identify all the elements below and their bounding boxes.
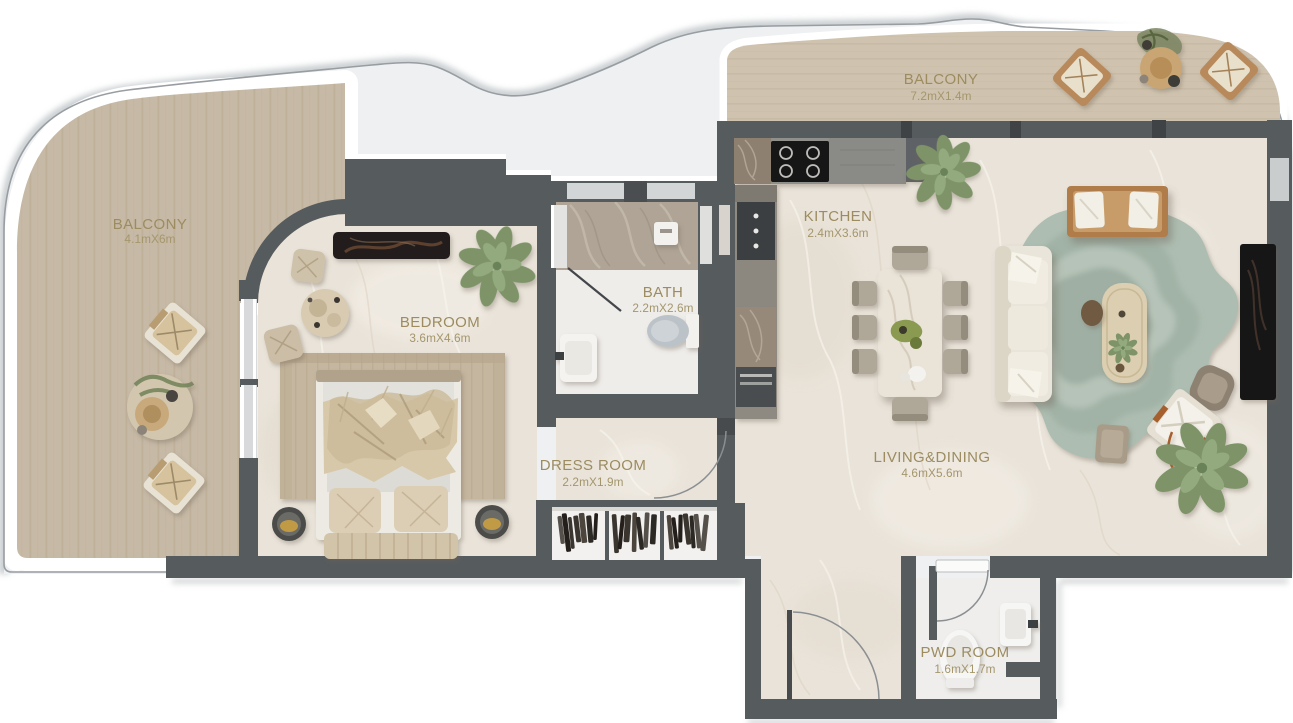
svg-text:BALCONY: BALCONY <box>904 71 979 88</box>
svg-text:KITCHEN: KITCHEN <box>804 208 873 225</box>
svg-text:PWD ROOM: PWD ROOM <box>920 644 1009 661</box>
svg-text:BATH: BATH <box>643 284 684 301</box>
svg-text:7.2mX1.4m: 7.2mX1.4m <box>910 89 971 103</box>
svg-text:BEDROOM: BEDROOM <box>400 314 480 331</box>
svg-text:4.6mX5.6m: 4.6mX5.6m <box>901 466 962 480</box>
svg-text:4.1mX6m: 4.1mX6m <box>124 232 175 246</box>
svg-text:2.2mX1.9m: 2.2mX1.9m <box>562 475 623 489</box>
svg-text:3.6mX4.6m: 3.6mX4.6m <box>409 331 470 345</box>
svg-text:BALCONY: BALCONY <box>113 216 188 233</box>
svg-text:DRESS ROOM: DRESS ROOM <box>540 457 647 474</box>
svg-text:2.2mX2.6m: 2.2mX2.6m <box>632 301 693 315</box>
svg-text:2.4mX3.6m: 2.4mX3.6m <box>807 226 868 240</box>
svg-text:LIVING&DINING: LIVING&DINING <box>874 449 991 466</box>
svg-text:1.6mX1.7m: 1.6mX1.7m <box>934 662 995 676</box>
